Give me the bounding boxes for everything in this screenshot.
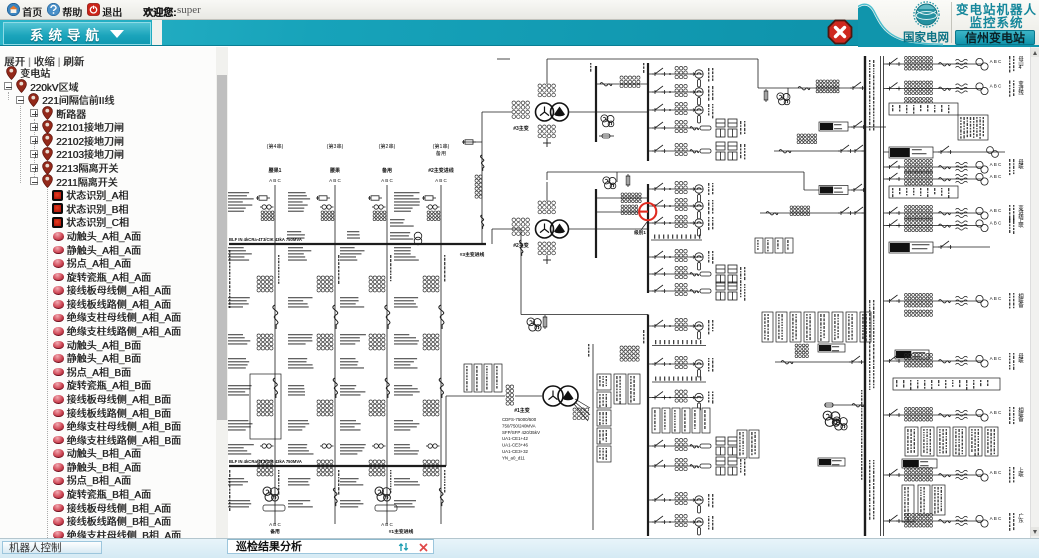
svg-text:#1主变: #1主变 (514, 407, 530, 414)
svg-text:A B C: A B C (990, 410, 1002, 415)
svg-text:上联: 上联 (1017, 466, 1024, 479)
svg-text:A B C: A B C (990, 356, 1002, 361)
svg-text:A B C: A B C (329, 178, 341, 183)
svg-text:相联备: 相联备 (1017, 292, 1024, 309)
svg-text:#1主变进线: #1主变进线 (389, 528, 414, 535)
svg-text:A B C: A B C (990, 208, 1002, 213)
svg-text:A B C: A B C (269, 178, 281, 183)
svg-text:(第2串): (第2串) (379, 142, 396, 150)
svg-text:级别1: 级别1 (634, 229, 646, 236)
svg-text:A B C: A B C (435, 178, 447, 183)
svg-text:A B C: A B C (269, 522, 281, 527)
svg-text:A B C: A B C (990, 84, 1002, 89)
svg-text:母联: 母联 (1017, 159, 1024, 171)
svg-text:(第3串): (第3串) (327, 142, 344, 150)
svg-text:#2主变进线: #2主变进线 (428, 167, 454, 174)
svg-text:SFP/SFP 420/35kV: SFP/SFP 420/35kV (502, 430, 540, 435)
svg-text:UA1-CE1+42: UA1-CE1+42 (502, 436, 529, 441)
svg-text:备用: 备用 (381, 167, 392, 174)
svg-text:相联备: 相联备 (1017, 406, 1024, 423)
svg-text:UA1-CE3+46: UA1-CE3+46 (502, 443, 529, 448)
svg-text:#3主变: #3主变 (513, 125, 529, 132)
svg-text:CDFS-75000/500: CDFS-75000/500 (502, 417, 537, 422)
svg-text:母山4: 母山4 (1017, 56, 1024, 70)
svg-text:750/750/240MVA: 750/750/240MVA (502, 423, 536, 428)
svg-text:(第1串): (第1串) (433, 142, 450, 150)
svg-text:A B C: A B C (990, 174, 1002, 179)
svg-text:A B C: A B C (990, 59, 1002, 64)
svg-text:A B C: A B C (990, 296, 1002, 301)
svg-text:腰果1: 腰果1 (269, 167, 282, 174)
svg-text:YN_a0_d11: YN_a0_d11 (502, 455, 525, 460)
svg-text:#2主变: #2主变 (513, 242, 529, 249)
svg-text:广东: 广东 (1017, 512, 1024, 523)
svg-text:A B C: A B C (990, 516, 1002, 521)
svg-text:变进线: 变进线 (1017, 79, 1024, 95)
svg-text:#3主变进线: #3主变进线 (460, 251, 485, 258)
svg-text:腰果: 腰果 (330, 167, 341, 174)
svg-text:BLF IN 4kCRa-4T3/CIK 43kA 750M: BLF IN 4kCRa-4T3/CIK 43kA 750MVA (229, 459, 302, 464)
svg-text:A B C: A B C (381, 178, 393, 183)
svg-text:(第4串): (第4串) (267, 142, 284, 150)
svg-text:A B C: A B C (990, 470, 1002, 475)
svg-text:A B C: A B C (990, 162, 1002, 167)
svg-text:备用: 备用 (436, 149, 446, 157)
svg-text:UA1-CE3+32: UA1-CE3+32 (502, 449, 529, 454)
svg-text:上联: 上联 (1017, 216, 1024, 229)
svg-text:母联: 母联 (1017, 353, 1024, 365)
svg-text:A B C: A B C (990, 221, 1002, 226)
svg-text:备用: 备用 (269, 528, 280, 535)
svg-text:A B C: A B C (381, 522, 393, 527)
